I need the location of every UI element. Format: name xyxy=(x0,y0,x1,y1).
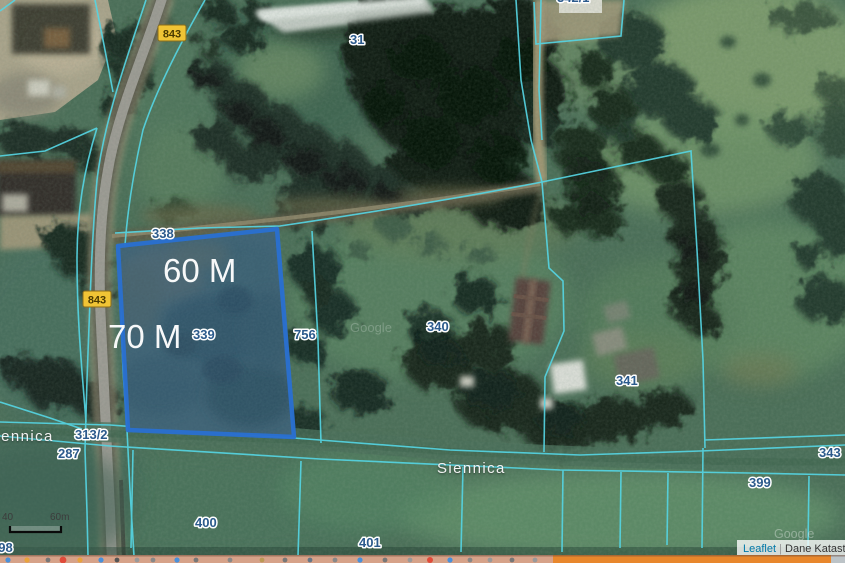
svg-text:340: 340 xyxy=(427,319,449,334)
svg-text:843: 843 xyxy=(163,29,181,41)
svg-text:60 M: 60 M xyxy=(163,252,236,289)
svg-text:843: 843 xyxy=(88,295,106,307)
svg-text:287: 287 xyxy=(58,446,80,461)
svg-text:343: 343 xyxy=(819,445,841,460)
svg-text:338: 338 xyxy=(152,226,174,241)
svg-text:399: 399 xyxy=(749,475,771,490)
svg-text:31: 31 xyxy=(350,32,364,47)
svg-text:60m: 60m xyxy=(50,512,69,523)
svg-text:401: 401 xyxy=(359,535,381,550)
svg-text:70 M: 70 M xyxy=(108,318,181,355)
svg-text:Google: Google xyxy=(774,527,814,541)
svg-text:40: 40 xyxy=(2,512,14,523)
svg-text:400: 400 xyxy=(195,515,217,530)
svg-text:Leaflet | Dane Katast: Leaflet | Dane Katast xyxy=(743,543,845,555)
svg-text:756: 756 xyxy=(294,327,316,342)
svg-text:342/1: 342/1 xyxy=(557,0,590,5)
svg-text:Google: Google xyxy=(350,320,392,335)
svg-text:339: 339 xyxy=(193,327,215,342)
svg-text:341: 341 xyxy=(616,373,638,388)
svg-text:298: 298 xyxy=(0,540,13,555)
svg-text:Siennica: Siennica xyxy=(437,460,506,477)
svg-text:Siennica: Siennica xyxy=(0,428,54,445)
svg-text:313/2: 313/2 xyxy=(75,427,108,442)
